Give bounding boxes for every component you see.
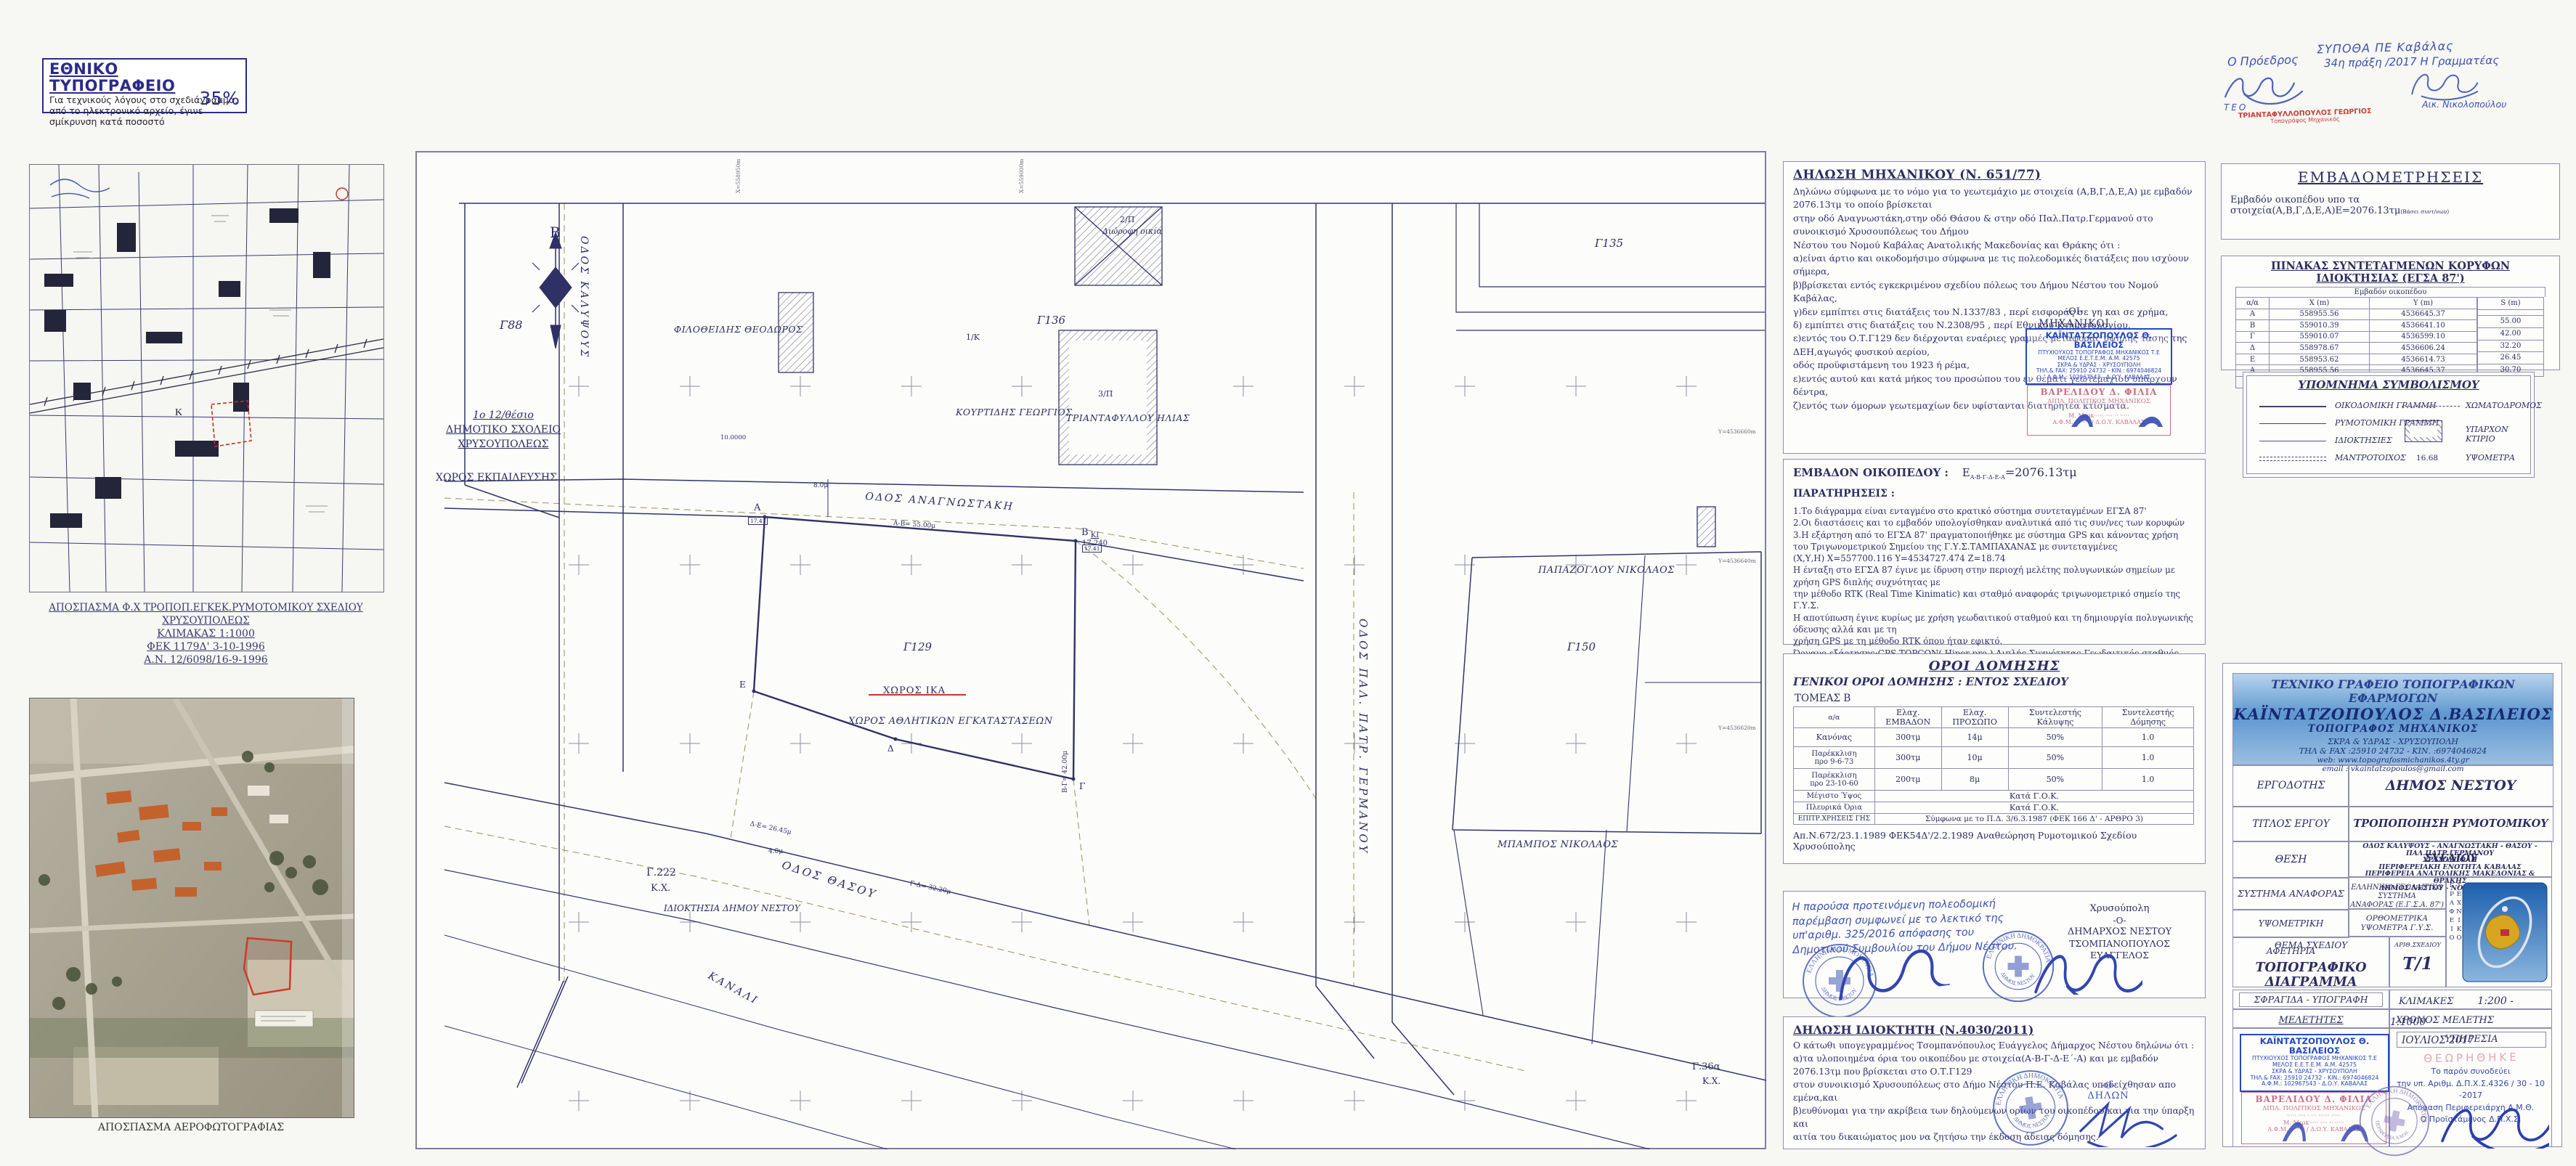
aerial-photo (29, 698, 354, 1118)
legend-label-existing-building: ΥΠΑΡΧΟΝ ΚΤΙΡΙΟ (2466, 425, 2534, 444)
coords-row: Δ558978.674536606.24 (2236, 343, 2477, 354)
r1c0: Κανόνας (1794, 728, 1875, 747)
r3c3: 50% (2008, 769, 2102, 791)
office-line3: ΤΟΠΟΓΡΑΦΟΣ ΜΗΧΑΝΙΚΟΣ (2233, 723, 2553, 735)
s2l: Πλευρικά Όρια (1794, 802, 1875, 814)
owner-papazoglou: ΠΑΠΑΖΟΓΛΟΥ ΝΙΚΟΛΑΟΣ (1538, 565, 1675, 576)
mayor-o: -Ο- (2045, 915, 2194, 926)
terms-row-side: Πλευρικά ΌριαΚατά Γ.Ο.Κ. (1794, 802, 2194, 814)
education-area-label: ΧΩΡΟΣ ΕΚΠΑΙΔΕΥΣΗΣ (436, 472, 557, 484)
ypiresia-label-box: ΥΠΗΡΕΣΙΑ (2397, 1032, 2546, 1048)
r1c2: 14μ (1941, 728, 2008, 747)
arith-label: ΑΡΙΘ.ΣΧΕΔΙΟΥ (2390, 941, 2445, 948)
terms-row-height: Μέγιστο ΎψοςΚατά Γ.Ο.Κ. (1794, 791, 2194, 802)
building-terms-box: ΟΡΟΙ ΔΟΜΗΣΗΣ ΓΕΝΙΚΟΙ ΟΡΟΙ ΔΟΜΗΣΗΣ : ΕΝΤΟ… (1783, 653, 2206, 864)
service-signature (2440, 1098, 2549, 1149)
block-label-g136: Γ136 (1037, 314, 1065, 327)
text-line: Η ένταξη στο ΕΓΣΑ 87 έγινε με ίδρυση στη… (1793, 564, 2195, 588)
ch0: α/α (2236, 298, 2270, 309)
area-heading: ΕΜΒΑΔΟΝ ΟΙΚΟΠΕΔΟΥ : (1793, 466, 1949, 479)
text-line: στην οδό Αναγνωστάκη,στην οδό Θάσου & στ… (1793, 212, 2195, 239)
cell-klimakes: ΚΛΙΜΑΚΕΣ 1:200 - 1:1000 (2389, 990, 2552, 1009)
logo-side-text: ΤΕΧΝΙΚΟ ΓΡΑΦΕΙΟ (2448, 882, 2463, 987)
declarant-signature (2079, 1095, 2180, 1147)
embadometriseis-text: Εμβαδόν οικοπέδου υπο τα στοιχεία(Α,Β,Γ,… (2230, 195, 2400, 216)
school-label: 1ο 12/θέσιο ΔΗΜΟΤΙΚΟ ΣΧΟΛΕΙΟ ΧΡΥΣΟΥΠΟΛΕΩ… (442, 408, 565, 452)
region-round-stamp: ΕΛΛΗΝΙΚΗ ΔΗΜΟΚΡΑΤΙΑ ΠΕΡΙΦΕΡΕΙΑ Α.Μ.Θ. (2349, 1076, 2439, 1165)
r3c1: 200τμ (1874, 769, 1941, 791)
legend-title: ΥΠΟΜΝΗΜΑ ΣΥΜΒΟΛΙΣΜΟΥ (2243, 378, 2534, 391)
office-logo (2461, 881, 2548, 983)
coords-row: Α558955.564536645.37 (2236, 309, 2477, 320)
owner-filotheidis: ΦΙΛΟΘΕΙΔΗΣ ΘΕΟΔΩΡΟΣ (674, 324, 803, 335)
text-line: χρήση GPS με τη μέθοδο RTK όπου ήταν εφι… (1793, 635, 2195, 647)
note-2p: 2/Π (1120, 215, 1134, 224)
president-stamp: ΤΡΙΑΝΤΑΦΥΛΛΟΠΟΥΛΟΣ ΓΕΩΡΓΙΟΣ Τοπογράφος Μ… (2238, 108, 2372, 127)
terms-row-parekklisi2: Παρέκκλισηπρο 23-10-60 200τμ8μ 50%1.0 (1794, 769, 2194, 791)
vertex-e: Ε (739, 680, 746, 690)
coords-subtitle: Εμβαδόν οικοπέδου (2235, 287, 2545, 297)
owner-round-stamp: ΕΛΛΗΝΙΚΗ ΔΗΜΟΚΡΑΤΙΑ ΔΗΜΟΣ ΝΕΣΤΟΥ (1983, 1061, 2078, 1155)
area-symbol: Ε (1962, 466, 1970, 479)
gridline-y2: Υ=4536640m (1718, 558, 1756, 564)
systima-v1: ΕΛΛΗΝΙΚΟ ΓΕΩΔΑΙΤΙΚΟ ΣΥΣΤΗΜΑ (2349, 884, 2445, 901)
vertex-b: Β (1081, 527, 1089, 538)
text-line: Το παρόν συνοδεύει (2392, 1066, 2550, 1078)
declarant-o: -Ο- (2076, 1080, 2141, 1090)
thema-label: ΘΕΜΑ ΣΧΕΔΙΟΥ (2233, 940, 2389, 950)
area-heading-row: ΕΜΒΑΔΟΝ ΟΙΚΟΠΕΔΟΥ : ΕΑ-Β-Γ-Δ-Ε-Α=2076.13… (1793, 465, 2195, 481)
r3c4: 1.0 (2102, 769, 2194, 791)
legend-sym-properties (2259, 441, 2326, 441)
xronos-label: ΧΡΟΝΟΣ ΜΕΛΕΤΗΣ (2396, 1015, 2494, 1026)
dim-bg: Β-Γ= 42.00μ (1062, 751, 1069, 793)
gridline-y3: Υ=4536620m (1718, 725, 1756, 731)
cell-thesi: ΘΕΣΗ (2232, 841, 2349, 878)
r1c3: 50% (2008, 728, 2102, 747)
secretary-signature (2410, 67, 2482, 102)
dim-8m: 8.0μ (813, 482, 828, 489)
r1c1: 300τμ (1874, 728, 1941, 747)
engineer-declaration-title: ΔΗΛΩΣΗ ΜΗΧΑΝΙΚΟΥ (Ν. 651/77) (1793, 168, 2195, 182)
terms-title: ΟΡΟΙ ΔΟΜΗΣΗΣ (1793, 659, 2195, 674)
r2c0: Παρέκκλισηπρο 9-6-73 (1794, 747, 1875, 769)
coords-row: Ε558953.624536614.73 (2236, 354, 2477, 365)
s-val: 32.20 (2477, 341, 2544, 353)
legend-box: ΥΠΟΜΝΗΜΑ ΣΥΜΒΟΛΙΣΜΟΥ ΟΙΚΟΔΟΜΙΚΗ ΓΡΑΜΜΗ Ρ… (2243, 372, 2535, 478)
scanned-topographic-sheet: { "stamp_note":{"title":"ΕΘΝΙΚΟ ΤΥΠΟΓΡΑΦ… (0, 0, 2576, 1159)
text-line: β)βρίσκεται εντός εγκεκριμένου σχεδίου π… (1793, 279, 2195, 306)
sfragida-label: ΣΦΡΑΓΙΔΑ - ΥΠΟΓΡΑΦΗ (2239, 992, 2383, 1007)
ypsometriki-v2: ΥΨΟΜΕΤΡΑ Γ.Υ.Σ. (2349, 924, 2445, 933)
legend-label-properties: ΙΔΙΟΚΤΗΣΙΕΣ (2335, 436, 2392, 445)
ch1: X (m) (2270, 298, 2370, 309)
ypiresia-label: ΥΠΗΡΕΣΙΑ (2445, 1034, 2498, 1045)
office-line6: web: www.topografosmichanikos.4ty.gr (2233, 756, 2553, 765)
block-label-g135: Γ135 (1595, 237, 1623, 250)
office-header: ΤΕΧΝΙΚΟ ΓΡΑΦΕΙΟ ΤΟΠΟΓΡΑΦΙΚΩΝ ΕΦΑΡΜΟΓΩΝ Κ… (2232, 673, 2553, 766)
ypsometriki-v1: ΟΡΘΟΜΕΤΡΙΚΑ (2349, 914, 2445, 924)
s1v: Κατά Γ.Ο.Κ. (1874, 791, 2193, 802)
r3c2: 8μ (1941, 769, 2008, 791)
cell-xronos: ΧΡΟΝΟΣ ΜΕΛΕΤΗΣ ΙΟΥΛΙΟΣ 2017 (2389, 1009, 2552, 1028)
vertex-b-box: 17.41 (1082, 545, 1102, 553)
cell-ergodotis-value: ΔΗΜΟΣ ΝΕΣΤΟΥ (2348, 765, 2553, 807)
owner-declaration-title: ΔΗΛΩΣΗ ΙΔΙΟΚΤΗΤΗ (Ν.4030/2011) (1793, 1023, 2195, 1037)
cell-systima: ΣΥΣΤΗΜΑ ΑΝΑΦΟΡΑΣ (2232, 877, 2349, 910)
klimakes-label: ΚΛΙΜΑΚΕΣ (2399, 996, 2453, 1007)
cell-ypsometriki-value: ΟΡΘΟΜΕΤΡΙΚΑ ΥΨΟΜΕΤΡΑ Γ.Υ.Σ. (2348, 909, 2446, 937)
note-2p-house: Διώροφη οικία (1102, 227, 1162, 236)
secretary-name: Αικ. Νικολοπούλου (2422, 99, 2506, 110)
block-label-g129: Γ129 (903, 640, 932, 653)
cell-logo: ΤΕΧΝΙΚΟ ΓΡΑΦΕΙΟ (2446, 877, 2552, 987)
reduction-stamp-box: ΕΘΝΙΚΟ ΤΥΠΟΓΡΑΦΕΙΟ Για τεχνικούς λόγους … (42, 58, 247, 113)
terms-row-kanonas: Κανόνας300τμ 14μ50% 1.0 (1794, 728, 2194, 747)
text-line: α)είναι άρτιο και οικοδομήσιμο σύμφωνα μ… (1793, 252, 2195, 279)
text-line: 3.Η εξάρτηση από το ΕΓΣΑ 87' πραγματοποι… (1793, 529, 2195, 541)
cell-meletites-header: ΜΕΛΕΤΗΤΕΣ (2232, 1009, 2389, 1028)
terms-footnote: Απ.Ν.672/23.1.1989 ΦΕΚ54Δ'/2.2.1989 Αναθ… (1793, 830, 2195, 852)
block-label-g222: Γ.222 (646, 867, 676, 878)
reduction-stamp-line3: σμίκρυνση κατά ποσοστό (49, 116, 240, 127)
coords-row: Β559010.394536641.10 (2236, 320, 2477, 332)
cell-titlos-value: ΤΡΟΠΟΠΟΙΗΣΗ ΡΥΜΟΤΟΜΙΚΟΥ ΣΧΕΔΙΟΥ (2348, 806, 2553, 842)
area-notes-box: ΕΜΒΑΔΟΝ ΟΙΚΟΠΕΔΟΥ : ΕΑ-Β-Γ-Δ-Ε-Α=2076.13… (1783, 459, 2206, 645)
area-subscript: Α-Β-Γ-Δ-Ε-Α (1970, 474, 2005, 481)
plan-caption-line4: Α.Ν. 12/6098/16-9-1996 (29, 653, 383, 666)
school-line1: 1ο 12/θέσιο (442, 408, 565, 423)
terms-row-parekklisi1: Παρέκκλισηπρο 9-6-73 300τμ10μ 50%1.0 (1794, 747, 2194, 769)
aerial-photo-drawing (30, 698, 354, 1117)
vertex-d: Δ (887, 743, 894, 754)
block-label-g36a: Γ.36α (1692, 1061, 1720, 1072)
terms-table: α/α Ελαχ. ΕΜΒΑΔΟΝ Ελαχ. ΠΡΟΣΩΠΟ Συντελεσ… (1793, 706, 2194, 825)
text-line: ΟΔΟΣ ΚΑΛΥΨΟΥΣ - ΑΝΑΓΝΩΣΤΑΚΗ - ΘΑΣΟΥ - ΠΑ… (2349, 843, 2551, 857)
plan-excerpt-drawing: Κ (30, 165, 383, 592)
terms-row-uses: ΕΠΙΤΡ.ΧΡΗΣΕΙΣ ΓΗΣΣύμφωνα με το Π.Δ. 3/6.… (1794, 814, 2194, 825)
owner-triantafyllou: ΤΡΙΑΝΤΑΦΥΛΛΟΥ ΗΛΙΑΣ (1066, 412, 1190, 423)
embadometriseis-small: (Βάσει συντ/νων) (2400, 208, 2449, 215)
ch3: S (m) (2477, 297, 2544, 310)
plan-excerpt-caption: ΑΠΟΣΠΑΣΜΑ Φ.Χ ΤΡΟΠΟΠ.ΕΓΚΕΚ.ΡΥΜΟΤΟΜΙΚΟΥ Σ… (29, 601, 383, 666)
coords-title: ΠΙΝΑΚΑΣ ΣΥΝΤΕΤΑΓΜΕΝΩΝ ΚΟΡΥΦΩΝ ΙΔΙΟΚΤΗΣΙΑ… (2229, 260, 2552, 285)
text-line: Δηλώνω σύμφωνα με το νόμο για το γεωτεμά… (1793, 185, 2195, 212)
cell-thesi-value: ΟΔΟΣ ΚΑΛΥΨΟΥΣ - ΑΝΑΓΝΩΣΤΑΚΗ - ΘΑΣΟΥ - ΠΑ… (2348, 841, 2552, 877)
cell-sfragida: ΣΦΡΑΓΙΔΑ - ΥΠΟΓΡΑΦΗ (2232, 990, 2389, 1009)
owner-mpampos: ΜΠΑΜΠΟΣ ΝΙΚΟΛΑΟΣ (1498, 839, 1618, 850)
coords-s-column: S (m) 55.00 42.00 32.20 26.45 30.70 (2477, 297, 2544, 377)
text-line: την μέθοδο RTK (Real Time Kinimatic) και… (1793, 588, 2195, 612)
r3c0: Παρέκκλισηπρο 23-10-60 (1794, 769, 1875, 791)
block-label-g150: Γ150 (1567, 640, 1596, 653)
street-label-germanou: ΟΔΟΣ ΠΑΛ. ΠΑΤΡ. ΓΕΡΜΑΝΟΥ (1357, 619, 1370, 855)
president-label: Ο Πρόεδρος (2227, 52, 2299, 68)
north-label: Β (550, 224, 561, 241)
plan-caption-line3: ΦΕΚ 1179Δ' 3-10-1996 (29, 640, 383, 653)
legend-label-elevations: ΥΨΟΜΕΤΡΑ (2466, 453, 2515, 462)
vertex-a-box: 17.41 (748, 517, 768, 525)
arith-value: Τ/1 (2390, 954, 2445, 974)
vertex-g: Γ (1079, 781, 1085, 791)
text-line: 1.Το διάγραμμα είναι ενταγμένο στο κρατι… (1793, 505, 2195, 517)
plan-caption-line2: ΚΛΙΜΑΚΑΣ 1:1000 (29, 627, 383, 640)
aerial-caption: ΑΠΟΣΠΑΣΜΑ ΑΕΡΟΦΩΤΟΓΡΑΦΙΑΣ (29, 1122, 353, 1133)
text-line: (Χ,Υ,Η) Χ=557700.116 Υ=4534727.474 Ζ=18.… (1793, 553, 2195, 564)
text-line: Νέστου του Νομού Καβάλας Ανατολικής Μακε… (1793, 239, 2195, 252)
plan-excerpt-image: Κ (29, 164, 384, 592)
cell-ergodotis: ΕΡΓΟΔΟΤΗΣ (2232, 765, 2349, 807)
legend-label-dirt-road: ΧΩΜΑΤΟΔΡΟΜΟΣ (2466, 401, 2542, 410)
terms-h3: Συντελεστής Κάλυψης (2008, 707, 2102, 728)
owner-kourtidis: ΚΟΥΡΤΙΔΗΣ ΓΕΩΡΓΙΟΣ (956, 407, 1073, 417)
office-line2: ΚΑΪΝΤΑΤΖΟΠΟΥΛΟΣ Δ.ΒΑΣΙΛΕΙΟΣ (2233, 705, 2553, 723)
text-line: 2.Οι διαστάσεις και το εμβαδόν υπολογίσθ… (1793, 517, 2195, 529)
plan-caption-line1: ΑΠΟΣΠΑΣΜΑ Φ.Χ ΤΡΟΠΟΠ.ΕΓΚΕΚ.ΡΥΜΟΤΟΜΙΚΟΥ Σ… (29, 601, 383, 627)
dim-4m: 4.0μ (768, 848, 783, 855)
office-line4: ΣΚΡΑ & ΥΔΡΑΣ - ΧΡΥΣΟΥΠΟΛΗ (2233, 737, 2553, 746)
s-val: 26.45 (2477, 352, 2544, 364)
terms-h4: Συντελεστής Δόμησης (2102, 707, 2194, 728)
office-line1: ΤΕΧΝΙΚΟ ΓΡΑΦΕΙΟ ΤΟΠΟΓΡΑΦΙΚΩΝ ΕΦΑΡΜΟΓΩΝ (2233, 677, 2553, 705)
block-label-g36a-kx: Κ.Χ. (1702, 1076, 1720, 1086)
coords-row: Γ559010.074536599.10 (2236, 331, 2477, 343)
legend-sym-dirt-road (2402, 406, 2460, 407)
theorithike-mark: ΘΕΩΡΗΘΗΚΕ (2402, 1050, 2540, 1065)
observations-list: 1.Το διάγραμμα είναι ενταγμένο στο κρατι… (1793, 505, 2195, 671)
terms-sector: ΤΟΜΕΑΣ Β (1795, 693, 2195, 704)
mayor-city: Χρυσούπολη (2045, 903, 2194, 915)
cell-titlos: ΤΙΤΛΟΣ ΕΡΓΟΥ (2232, 806, 2349, 842)
observations-heading: ΠΑΡΑΤΗΡΗΣΕΙΣ : (1793, 488, 2195, 500)
use-label-ika: ΧΩΡΟΣ ΙΚΑ (883, 685, 946, 696)
legend-elevation-value: 16.68 (2416, 454, 2438, 462)
school-line2: ΔΗΜΟΤΙΚΟ ΣΧΟΛΕΙΟ (442, 423, 565, 437)
note-3p: 3/Π (1098, 389, 1113, 399)
closing-oi: -ΟΙ- (2016, 306, 2132, 318)
s1l: Μέγιστο Ύψος (1794, 791, 1875, 802)
embadometriseis-title: ΕΜΒΑΔΟΜΕΤΡΗΣΕΙΣ (2230, 168, 2551, 186)
cell-thema: ΘΕΜΑ ΣΧΕΔΙΟΥ ΤΟΠΟΓΡΑΦΙΚΟ ΔΙΑΓΡΑΜΜΑ (2232, 937, 2389, 987)
council-signature-2 (2033, 937, 2142, 995)
svg-text:Κ: Κ (175, 407, 182, 418)
area-value: =2076.13τμ (2005, 465, 2077, 479)
text-line: του Τριγωνομετρικού Σημείου της Γ.Υ.Σ.ΤΑ… (1793, 541, 2195, 553)
school-line3: ΧΡΥΣΟΥΠΟΛΕΩΣ (442, 437, 565, 452)
municipal-property-label: ΙΔΙΟΚΤΗΣΙΑ ΔΗΜΟΥ ΝΕΣΤΟΥ (664, 903, 800, 913)
r1c4: 1.0 (2102, 728, 2194, 747)
terms-subtitle: ΓΕΝΙΚΟΙ ΟΡΟΙ ΔΟΜΗΣΗΣ : ΕΝΤΟΣ ΣΧΕΔΙΟΥ (1793, 675, 2195, 688)
note-1k: 1/Κ (966, 333, 980, 342)
s3l: ΕΠΙΤΡ.ΧΡΗΣΕΙΣ ΓΗΣ (1794, 814, 1875, 825)
coords-box: ΠΙΝΑΚΑΣ ΣΥΝΤΕΤΑΓΜΕΝΩΝ ΚΟΡΥΦΩΝ ΙΔΙΟΚΤΗΣΙΑ… (2221, 256, 2560, 370)
legend-sym-street-line (2259, 423, 2326, 424)
terms-h2: Ελαχ. ΠΡΟΣΩΠΟ (1941, 707, 2008, 728)
block-label-g88: Γ88 (500, 318, 522, 332)
street-label-kalypsous: ΟΔΟΣ ΚΑΛΥΨΟΥΣ (578, 236, 590, 359)
block-label-g222-kx: Κ.Χ. (651, 883, 670, 894)
embadometriseis-box: ΕΜΒΑΔΟΜΕΤΡΗΣΕΙΣ Εμβαδόν οικοπέδου υπο τα… (2221, 163, 2560, 240)
dim-10m: 10.0000 (720, 434, 746, 441)
coords-table: α/αX (m)Y (m) Α558955.564536645.37 Β5590… (2235, 297, 2477, 377)
office-line5: ΤΗΛ & FAX :25910 24732 - ΚΙΝ. :697404682… (2233, 746, 2553, 756)
text-line: Ο κάτωθι υπογεγραμμένος Τσομπανόπουλος Ε… (1793, 1039, 2195, 1052)
r2c4: 1.0 (2102, 747, 2194, 769)
legend-sym-building-line (2259, 406, 2326, 407)
legend-label-wall: ΜΑΝΤΡΟΤΟΙΧΟΣ (2335, 453, 2406, 462)
engineer-signature (2048, 318, 2171, 427)
ch2: Y (m) (2370, 298, 2477, 309)
gridline-y1: Υ=4536660m (1718, 428, 1756, 435)
r2c3: 50% (2008, 747, 2102, 769)
s3v: Σύμφωνα με το Π.Δ. 3/6.3.1987 (ΦΕΚ 166 Δ… (1874, 814, 2193, 825)
cell-systima-value: ΕΛΛΗΝΙΚΟ ΓΕΩΔΑΙΤΙΚΟ ΣΥΣΤΗΜΑ ΑΝΑΦΟΡΑΣ (Ε.… (2348, 877, 2446, 909)
s-val: 55.00 (2477, 316, 2544, 328)
terms-h1: Ελαχ. ΕΜΒΑΔΟΝ (1874, 707, 1941, 728)
committee-note: ΣΥΠΟΘΑ ΠΕ Καβάλας (2317, 39, 2454, 57)
gridline-x1: Χ=558950m (735, 159, 741, 193)
thema-value: ΤΟΠΟΓΡΑΦΙΚΟ ΔΙΑΓΡΑΜΜΑ (2233, 961, 2389, 990)
gridline-x2: Χ=559000m (1018, 159, 1025, 193)
embadometriseis-line: Εμβαδόν οικοπέδου υπο τα στοιχεία(Α,Β,Γ,… (2230, 195, 2551, 216)
cell-ypsometriki: ΥΨΟΜΕΤΡΙΚΗ ΑΦΕΤΗΡΙΑ (2232, 909, 2349, 938)
use-label-sports: ΧΩΡΟΣ ΑΘΛΗΤΙΚΩΝ ΕΓΚΑΤΑΣΤΑΣΕΩΝ (848, 716, 1053, 727)
reduction-percent: 35% (199, 88, 240, 109)
text-line: Η αποτύπωση έγινε κυρίως με χρήση γεωδαι… (1793, 612, 2195, 636)
cell-arith: ΑΡΙΘ.ΣΧΕΔΙΟΥ Τ/1 (2389, 937, 2446, 987)
r2c2: 10μ (1941, 747, 2008, 769)
main-map-linework (415, 151, 1766, 1149)
meletites-label: ΜΕΛΕΤΗΤΕΣ (2278, 1015, 2343, 1026)
vertex-a: Α (754, 502, 760, 513)
s2v: Κατά Γ.Ο.Κ. (1874, 802, 2193, 814)
r2c1: 300τμ (1874, 747, 1941, 769)
legend-sym-wall (2259, 457, 2326, 461)
legend-sym-existing-building (2405, 420, 2442, 442)
text-line: γ)δεν εμπίπτει στις διατάξεις του Ν.1337… (1793, 306, 2195, 319)
s-val: 42.00 (2477, 328, 2544, 341)
terms-h0: α/α (1794, 707, 1875, 728)
